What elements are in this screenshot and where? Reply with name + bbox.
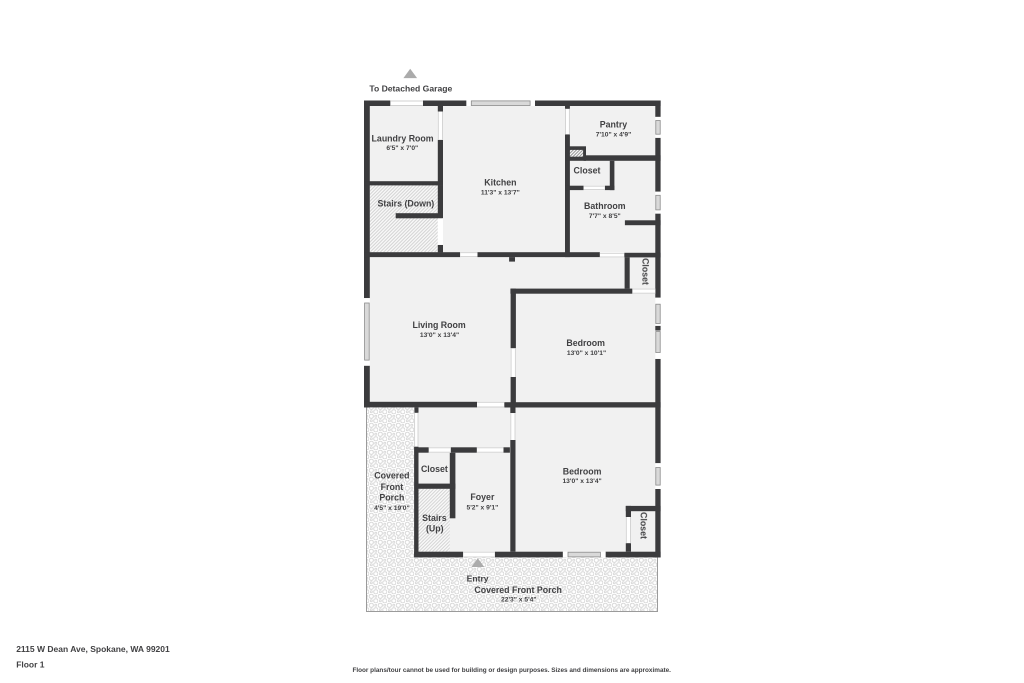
- svg-text:To Detached Garage: To Detached Garage: [369, 83, 452, 93]
- svg-text:Closet: Closet: [574, 166, 601, 176]
- svg-text:Foyer: Foyer: [470, 492, 495, 502]
- svg-text:Covered Front Porch: Covered Front Porch: [474, 585, 562, 595]
- svg-text:Front: Front: [381, 482, 404, 492]
- svg-text:Bedroom: Bedroom: [566, 338, 605, 348]
- svg-text:11'3" x 13'7": 11'3" x 13'7": [481, 190, 520, 197]
- svg-text:Bathroom: Bathroom: [584, 201, 626, 211]
- svg-text:Floor 1: Floor 1: [16, 660, 45, 670]
- svg-text:Kitchen: Kitchen: [484, 177, 516, 187]
- svg-text:Covered: Covered: [374, 471, 409, 481]
- svg-text:Porch: Porch: [379, 493, 404, 503]
- svg-text:7'7" x 8'5": 7'7" x 8'5": [589, 213, 621, 220]
- svg-text:Stairs: Stairs: [422, 513, 447, 523]
- svg-text:Floor plans/tour cannot be use: Floor plans/tour cannot be used for buil…: [352, 667, 671, 674]
- svg-text:5'2" x 9'1": 5'2" x 9'1": [466, 505, 498, 512]
- svg-text:Laundry Room: Laundry Room: [372, 133, 434, 143]
- svg-text:13'0" x 13'4": 13'0" x 13'4": [420, 332, 459, 339]
- svg-text:Entry: Entry: [467, 573, 489, 583]
- svg-text:22'3" x 5'4": 22'3" x 5'4": [501, 596, 537, 603]
- svg-text:(Up): (Up): [426, 524, 444, 534]
- svg-text:Bedroom: Bedroom: [563, 466, 602, 476]
- svg-text:4'5" x 19'0": 4'5" x 19'0": [374, 505, 410, 512]
- svg-text:13'0" x 13'4": 13'0" x 13'4": [562, 478, 601, 485]
- svg-text:Closet: Closet: [640, 258, 650, 285]
- svg-text:6'5" x 7'0": 6'5" x 7'0": [386, 145, 418, 152]
- svg-text:2115 W Dean Ave, Spokane, WA 9: 2115 W Dean Ave, Spokane, WA 99201: [16, 644, 170, 654]
- svg-text:Living Room: Living Room: [412, 320, 465, 330]
- svg-text:Closet: Closet: [421, 464, 448, 474]
- svg-text:Stairs (Down): Stairs (Down): [378, 198, 435, 208]
- svg-text:7'10" x 4'9": 7'10" x 4'9": [596, 131, 632, 138]
- svg-text:Pantry: Pantry: [600, 120, 627, 130]
- svg-text:13'0" x 10'1": 13'0" x 10'1": [567, 350, 606, 357]
- svg-text:Closet: Closet: [639, 512, 649, 539]
